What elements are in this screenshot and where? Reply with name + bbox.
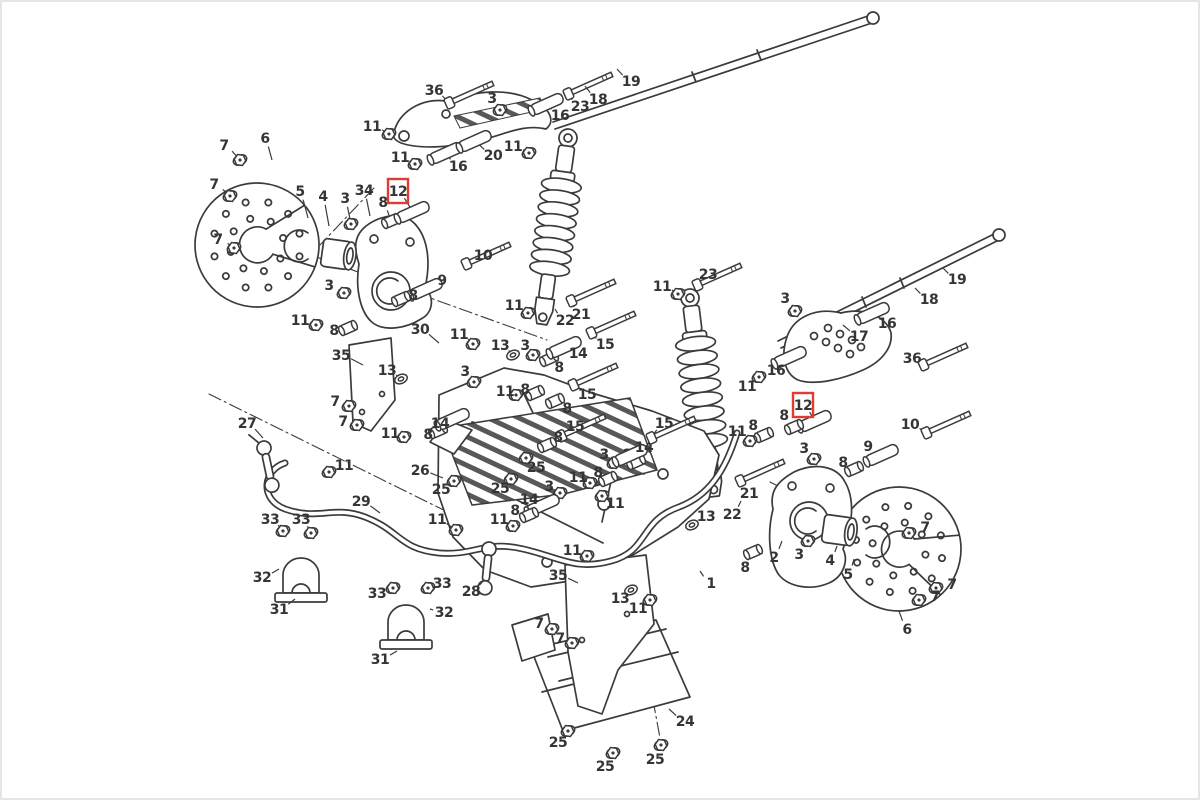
brake-disc-left — [181, 169, 333, 321]
svg-text:11: 11 — [563, 543, 581, 559]
svg-text:10: 10 — [901, 417, 920, 433]
svg-text:32: 32 — [435, 605, 453, 621]
svg-text:8: 8 — [510, 503, 519, 519]
svg-text:8: 8 — [378, 195, 387, 211]
svg-text:7: 7 — [930, 589, 939, 605]
svg-text:33: 33 — [368, 586, 386, 602]
svg-text:24: 24 — [676, 714, 695, 730]
part-label-3: 3 — [799, 441, 822, 467]
svg-text:7: 7 — [330, 394, 339, 410]
part-label-6: 6 — [899, 611, 912, 638]
svg-text:3: 3 — [487, 91, 496, 107]
svg-text:32: 32 — [253, 570, 271, 586]
bolt-icon — [918, 340, 970, 371]
part-label-11: 11 — [738, 369, 768, 395]
parts-diagram: 7776543348121111162036316231819111098311… — [2, 2, 1200, 800]
svg-text:28: 28 — [462, 584, 480, 600]
svg-text:36: 36 — [903, 351, 921, 367]
svg-text:15: 15 — [596, 337, 614, 353]
svg-text:9: 9 — [863, 439, 872, 455]
svg-text:19: 19 — [622, 74, 640, 90]
part-label-3: 3 — [324, 278, 352, 301]
svg-text:18: 18 — [920, 292, 938, 308]
part-label-15: 15 — [586, 308, 638, 353]
part-label-4: 4 — [318, 189, 329, 226]
svg-text:35: 35 — [549, 568, 567, 584]
svg-text:30: 30 — [411, 322, 430, 338]
part-label-11: 11 — [504, 139, 538, 161]
svg-text:4: 4 — [825, 553, 835, 569]
svg-text:29: 29 — [352, 494, 370, 510]
part-label-10: 10 — [901, 408, 972, 439]
svg-text:3: 3 — [460, 364, 469, 380]
guard-plate-left — [349, 338, 395, 431]
bushing-icon — [742, 544, 763, 561]
part-label-19: 19 — [943, 268, 966, 288]
svg-text:11: 11 — [291, 313, 309, 329]
pivot-rod-upper-left — [553, 12, 879, 129]
svg-text:11: 11 — [504, 139, 522, 155]
bolt-icon — [921, 408, 973, 439]
part-label-8: 8 — [329, 320, 358, 339]
svg-text:12: 12 — [794, 398, 812, 414]
svg-text:35: 35 — [332, 348, 350, 364]
svg-text:15: 15 — [655, 416, 673, 432]
svg-text:23: 23 — [571, 99, 589, 115]
steering-knuckle-left — [356, 216, 432, 328]
svg-text:7: 7 — [219, 138, 228, 154]
svg-text:8: 8 — [554, 360, 563, 376]
wheel-bearing-left — [320, 238, 358, 270]
part-label-32: 32 — [430, 605, 453, 621]
svg-text:13: 13 — [697, 509, 715, 525]
part-label-32: 32 — [253, 569, 279, 586]
part-label-9: 9 — [862, 439, 900, 468]
svg-text:11: 11 — [606, 496, 624, 512]
part-label-11: 11 — [381, 426, 413, 445]
svg-text:13: 13 — [491, 338, 509, 354]
svg-text:19: 19 — [948, 272, 966, 288]
svg-text:7: 7 — [947, 577, 956, 593]
part-label-3: 3 — [780, 291, 803, 319]
part-label-29: 29 — [352, 494, 380, 513]
svg-text:20: 20 — [484, 148, 503, 164]
svg-text:5: 5 — [843, 567, 852, 583]
svg-text:3: 3 — [794, 547, 803, 563]
bushing-clamp-left — [275, 558, 327, 602]
svg-text:14: 14 — [569, 346, 588, 362]
svg-text:8: 8 — [520, 382, 529, 398]
part-label-34: 34 — [355, 183, 374, 216]
svg-text:21: 21 — [740, 486, 758, 502]
part-label-25: 25 — [646, 737, 670, 768]
svg-text:25: 25 — [549, 735, 567, 751]
part-label-1: 1 — [700, 571, 716, 592]
nut-icon — [307, 317, 325, 334]
part-label-8: 8 — [740, 544, 763, 576]
svg-text:11: 11 — [728, 424, 746, 440]
svg-text:5: 5 — [295, 184, 304, 200]
svg-text:11: 11 — [428, 512, 446, 528]
svg-text:8: 8 — [553, 430, 562, 446]
svg-text:31: 31 — [371, 652, 389, 668]
svg-text:3: 3 — [324, 278, 333, 294]
svg-text:16: 16 — [551, 108, 569, 124]
svg-text:8: 8 — [740, 560, 749, 576]
nut-icon — [335, 285, 353, 302]
wheel-bearing-right — [821, 514, 859, 546]
svg-text:17: 17 — [850, 329, 868, 345]
part-label-18: 18 — [585, 86, 607, 108]
part-label-19: 19 — [617, 69, 640, 90]
part-label-11: 11 — [363, 119, 398, 142]
svg-text:3: 3 — [780, 291, 789, 307]
svg-text:11: 11 — [629, 601, 647, 617]
svg-text:11: 11 — [381, 426, 399, 442]
part-label-30: 30 — [411, 322, 439, 343]
svg-text:4: 4 — [318, 189, 328, 205]
part-label-11: 11 — [320, 458, 353, 480]
svg-text:16: 16 — [449, 159, 467, 175]
svg-text:23: 23 — [699, 267, 717, 283]
svg-text:8: 8 — [562, 401, 571, 417]
svg-text:22: 22 — [723, 507, 741, 523]
svg-text:25: 25 — [596, 759, 614, 775]
svg-text:3: 3 — [544, 479, 553, 495]
part-label-22: 22 — [723, 501, 741, 523]
part-label-11: 11 — [653, 279, 687, 302]
svg-text:33: 33 — [292, 512, 310, 528]
svg-text:11: 11 — [653, 279, 671, 295]
svg-text:11: 11 — [450, 327, 468, 343]
part-label-12: 12 — [388, 179, 431, 225]
svg-text:11: 11 — [496, 384, 514, 400]
svg-text:34: 34 — [355, 183, 374, 199]
part-label-8: 8 — [838, 455, 864, 477]
svg-text:14: 14 — [431, 416, 450, 432]
bolt-icon — [586, 308, 638, 339]
svg-text:11: 11 — [391, 150, 409, 166]
bushing-clamp-right — [380, 605, 432, 649]
diagram-canvas: 7776543348121111162036316231819111098311… — [0, 0, 1200, 800]
svg-text:33: 33 — [261, 512, 279, 528]
part-label-23: 23 — [692, 260, 744, 291]
svg-text:7: 7 — [213, 232, 222, 248]
svg-text:15: 15 — [578, 387, 596, 403]
svg-text:11: 11 — [505, 298, 523, 314]
svg-text:8: 8 — [838, 455, 847, 471]
part-label-31: 31 — [270, 599, 295, 618]
svg-text:8: 8 — [329, 323, 338, 339]
svg-text:10: 10 — [474, 248, 493, 264]
part-label-11: 11 — [391, 150, 424, 172]
svg-text:3: 3 — [520, 338, 529, 354]
part-label-11: 11 — [291, 313, 325, 333]
part-label-7: 7 — [219, 138, 248, 168]
svg-text:7: 7 — [920, 520, 929, 536]
svg-text:6: 6 — [902, 622, 911, 638]
svg-text:16: 16 — [767, 363, 785, 379]
svg-text:16: 16 — [878, 316, 896, 332]
svg-text:7: 7 — [534, 616, 543, 632]
svg-text:7: 7 — [338, 414, 347, 430]
svg-text:12: 12 — [389, 184, 407, 200]
svg-text:3: 3 — [340, 191, 349, 207]
part-label-36: 36 — [903, 340, 969, 371]
part-label-3: 3 — [520, 338, 541, 363]
svg-text:25: 25 — [527, 460, 545, 476]
nut-icon — [231, 152, 249, 169]
part-label-33: 33 — [368, 580, 402, 602]
svg-text:8: 8 — [779, 408, 788, 424]
part-label-25: 25 — [596, 745, 622, 775]
part-label-11: 11 — [450, 327, 482, 352]
svg-text:25: 25 — [646, 752, 664, 768]
svg-text:13: 13 — [378, 363, 396, 379]
nut-icon — [652, 737, 670, 754]
svg-text:6: 6 — [260, 131, 269, 147]
svg-text:11: 11 — [738, 379, 756, 395]
svg-text:21: 21 — [572, 307, 590, 323]
svg-text:7: 7 — [555, 631, 564, 647]
svg-text:8: 8 — [748, 418, 757, 434]
svg-text:1: 1 — [706, 576, 715, 592]
svg-text:13: 13 — [611, 591, 629, 607]
svg-text:11: 11 — [335, 458, 353, 474]
part-label-31: 31 — [371, 651, 397, 668]
part-label-6: 6 — [260, 131, 272, 160]
svg-text:8: 8 — [593, 465, 602, 481]
part-label-14: 14 — [545, 335, 588, 362]
svg-text:15: 15 — [566, 419, 584, 435]
svg-text:36: 36 — [425, 83, 443, 99]
part-label-10: 10 — [461, 239, 513, 270]
part-label-11: 11 — [505, 298, 537, 321]
nut-icon — [384, 580, 402, 597]
part-label-13: 13 — [491, 338, 521, 362]
svg-text:14: 14 — [520, 492, 539, 508]
svg-text:8: 8 — [408, 288, 417, 304]
svg-text:7: 7 — [209, 177, 218, 193]
bolt-icon — [566, 276, 618, 307]
svg-text:31: 31 — [270, 602, 288, 618]
stabilizer-link-left — [249, 431, 280, 495]
part-label-24: 24 — [669, 709, 695, 730]
svg-text:3: 3 — [599, 447, 608, 463]
svg-text:11: 11 — [363, 119, 381, 135]
part-label-18: 18 — [915, 288, 938, 308]
svg-text:11: 11 — [490, 512, 508, 528]
part-label-21: 21 — [566, 276, 618, 323]
svg-text:3: 3 — [799, 441, 808, 457]
svg-text:9: 9 — [437, 273, 446, 289]
svg-text:25: 25 — [432, 482, 450, 498]
part-label-33: 33 — [419, 576, 451, 596]
svg-text:25: 25 — [491, 481, 509, 497]
part-label-33: 33 — [261, 512, 292, 539]
svg-text:2: 2 — [769, 550, 778, 566]
nut-icon — [520, 145, 538, 162]
svg-text:18: 18 — [589, 92, 607, 108]
svg-text:11: 11 — [569, 470, 587, 486]
svg-text:27: 27 — [238, 416, 256, 432]
svg-text:33: 33 — [433, 576, 451, 592]
svg-text:26: 26 — [411, 463, 429, 479]
bushing-icon — [337, 320, 358, 337]
